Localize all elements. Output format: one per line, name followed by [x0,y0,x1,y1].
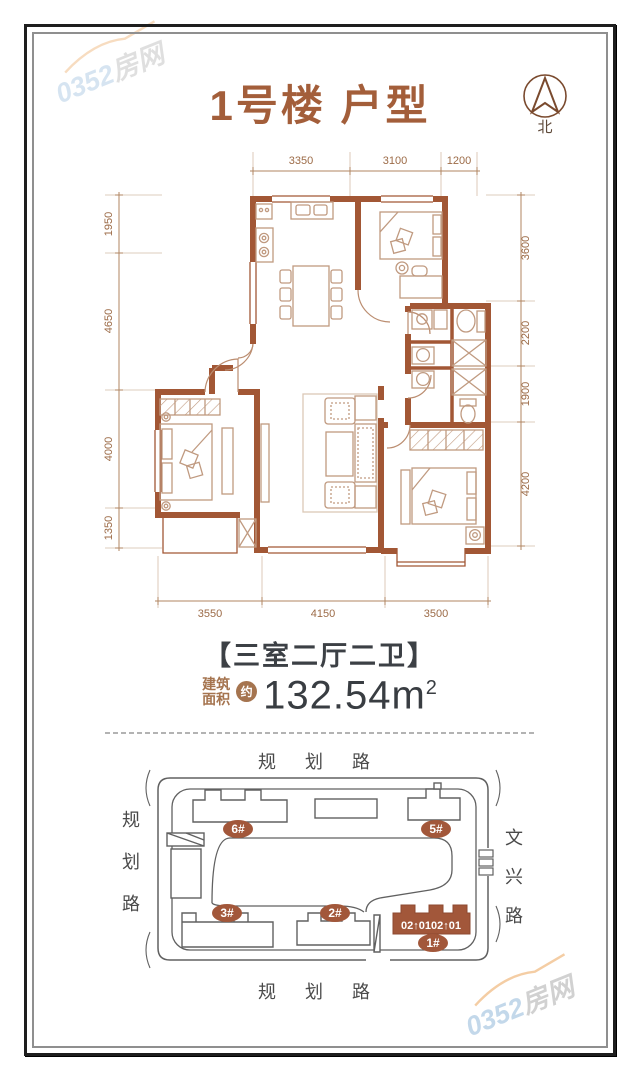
inner-frame [32,32,608,1048]
floorplan-page: 0352房网 1号楼 户型 北 [0,0,640,1080]
outer-frame [24,24,616,1056]
